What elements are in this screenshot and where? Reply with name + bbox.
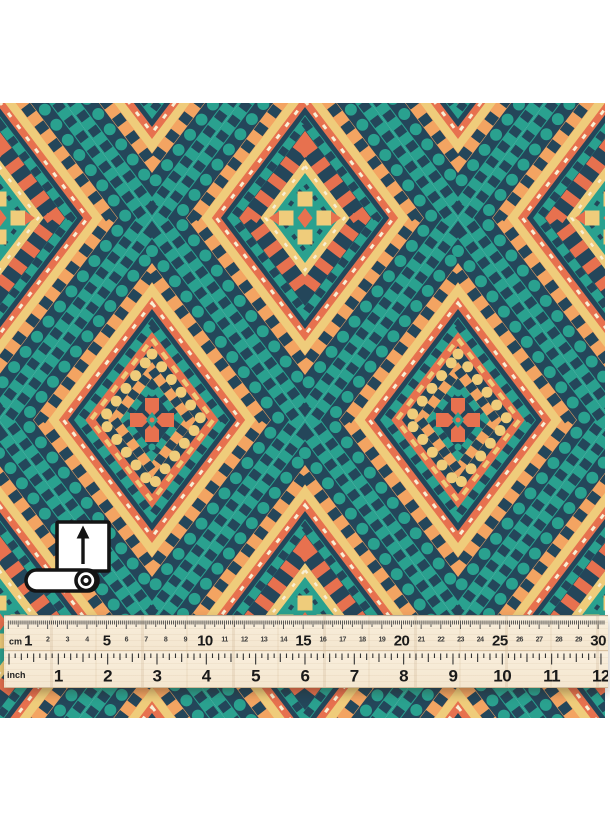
cm-number: 16 bbox=[320, 637, 327, 644]
cm-number: 27 bbox=[536, 637, 543, 644]
cm-number: 6 bbox=[125, 637, 129, 644]
cm-number: 23 bbox=[457, 637, 464, 644]
direction-box bbox=[57, 522, 109, 571]
inch-number: 4 bbox=[202, 667, 212, 686]
cm-number: 13 bbox=[261, 637, 268, 644]
measurement-rulers: cm 1234567891011121314151617181920212223… bbox=[4, 615, 608, 688]
cm-number: 4 bbox=[85, 637, 89, 644]
inch-unit-label: inch bbox=[7, 670, 26, 680]
fabric-roll-direction-icon bbox=[24, 517, 116, 599]
inch-number: 11 bbox=[543, 667, 560, 686]
cm-number: 22 bbox=[437, 637, 444, 644]
cm-number: 24 bbox=[477, 637, 484, 644]
cm-number: 11 bbox=[221, 637, 228, 644]
cm-number: 20 bbox=[394, 633, 410, 650]
cm-number: 9 bbox=[184, 637, 188, 644]
inch-number: 9 bbox=[448, 667, 457, 686]
inch-number: 3 bbox=[152, 667, 161, 686]
fabric-swatch-image: cm 1234567891011121314151617181920212223… bbox=[0, 0, 610, 825]
inch-number: 5 bbox=[251, 667, 260, 686]
inch-ticks bbox=[9, 654, 601, 665]
cm-number: 28 bbox=[555, 637, 562, 644]
inch-number: 10 bbox=[493, 667, 511, 686]
inch-number: 12 bbox=[592, 667, 608, 686]
cm-number: 14 bbox=[280, 637, 287, 644]
cm-number: 17 bbox=[339, 637, 346, 644]
cm-ticks bbox=[8, 621, 604, 630]
inch-number: 6 bbox=[300, 667, 309, 686]
cm-number: 18 bbox=[359, 637, 366, 644]
cm-number: 1 bbox=[24, 633, 32, 650]
cm-number: 19 bbox=[378, 637, 385, 644]
inch-number: 2 bbox=[103, 667, 112, 686]
inch-number: 1 bbox=[54, 667, 63, 686]
cm-number: 2 bbox=[46, 637, 50, 644]
cm-number: 30 bbox=[590, 633, 606, 650]
ruler-cm: cm 1234567891011121314151617181920212223… bbox=[4, 615, 608, 651]
cm-number: 7 bbox=[144, 637, 148, 644]
cm-number: 10 bbox=[197, 633, 213, 650]
cm-number: 5 bbox=[103, 633, 111, 650]
cm-number: 3 bbox=[66, 637, 70, 644]
inch-number: 7 bbox=[350, 667, 359, 686]
cm-number: 25 bbox=[492, 633, 508, 650]
cm-number: 12 bbox=[241, 637, 248, 644]
ruler-inch: inch 123456789101112 bbox=[4, 651, 608, 688]
cm-number: 26 bbox=[516, 637, 523, 644]
cm-number: 29 bbox=[575, 637, 582, 644]
fabric-roll-icon bbox=[26, 570, 98, 591]
cm-number: 15 bbox=[295, 633, 311, 650]
inch-number: 8 bbox=[399, 667, 408, 686]
cm-unit-label: cm bbox=[9, 637, 22, 647]
cm-number: 8 bbox=[164, 637, 168, 644]
cm-number: 21 bbox=[418, 637, 425, 644]
